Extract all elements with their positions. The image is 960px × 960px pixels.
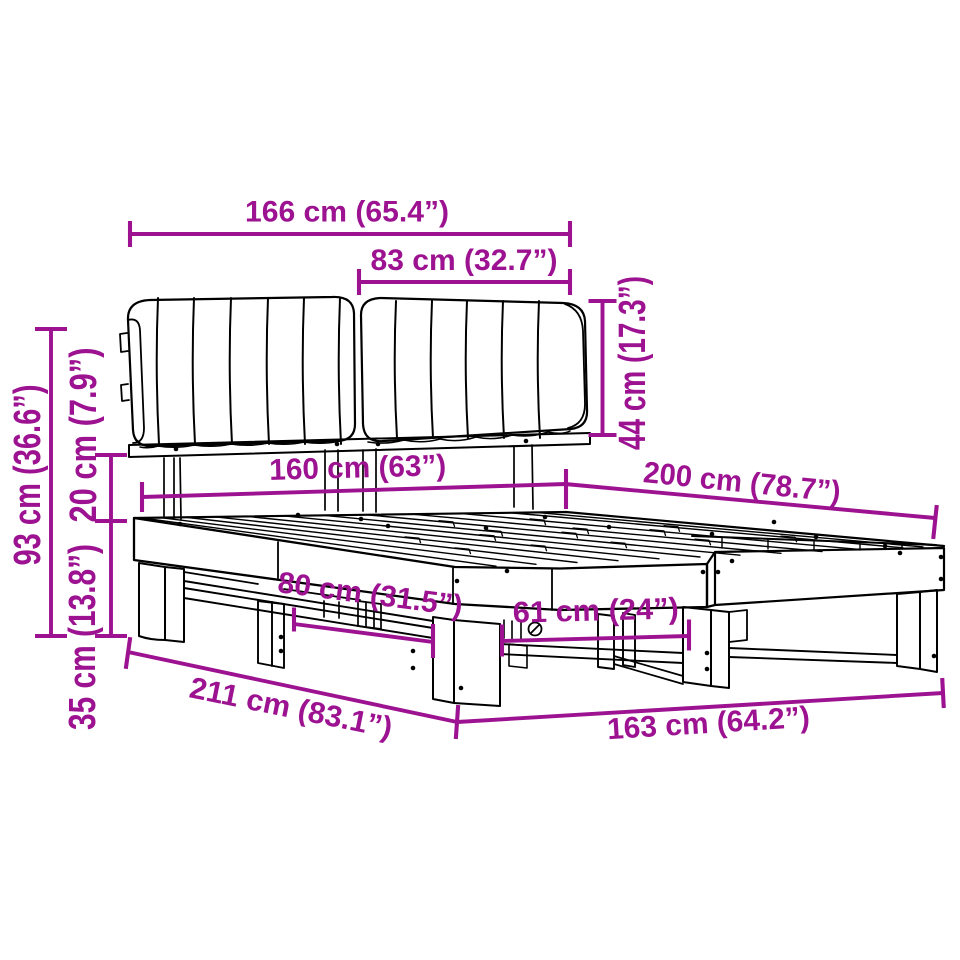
svg-text:35 cm (13.8”): 35 cm (13.8”) — [62, 544, 104, 730]
svg-text:20 cm (7.9”): 20 cm (7.9”) — [63, 348, 105, 523]
svg-text:61 cm (24”): 61 cm (24”) — [512, 592, 679, 629]
svg-text:83 cm (32.7”): 83 cm (32.7”) — [371, 244, 558, 277]
svg-text:93 cm (36.6”): 93 cm (36.6”) — [7, 385, 49, 566]
svg-text:166 cm (65.4”): 166 cm (65.4”) — [245, 196, 449, 229]
svg-text:160 cm (63”): 160 cm (63”) — [269, 449, 447, 487]
svg-text:44 cm (17.3”): 44 cm (17.3”) — [612, 276, 654, 450]
